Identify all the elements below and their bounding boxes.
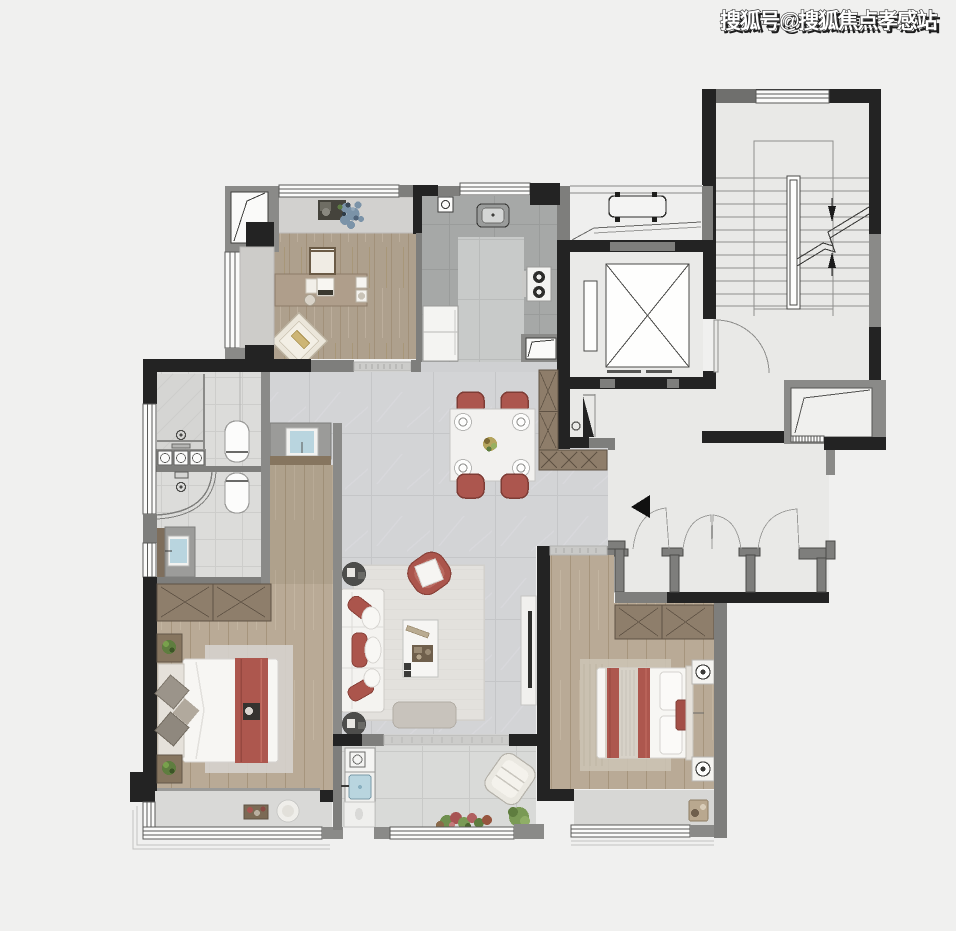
- svg-text:搜狐号@搜狐焦点孝感站: 搜狐号@搜狐焦点孝感站: [720, 9, 937, 33]
